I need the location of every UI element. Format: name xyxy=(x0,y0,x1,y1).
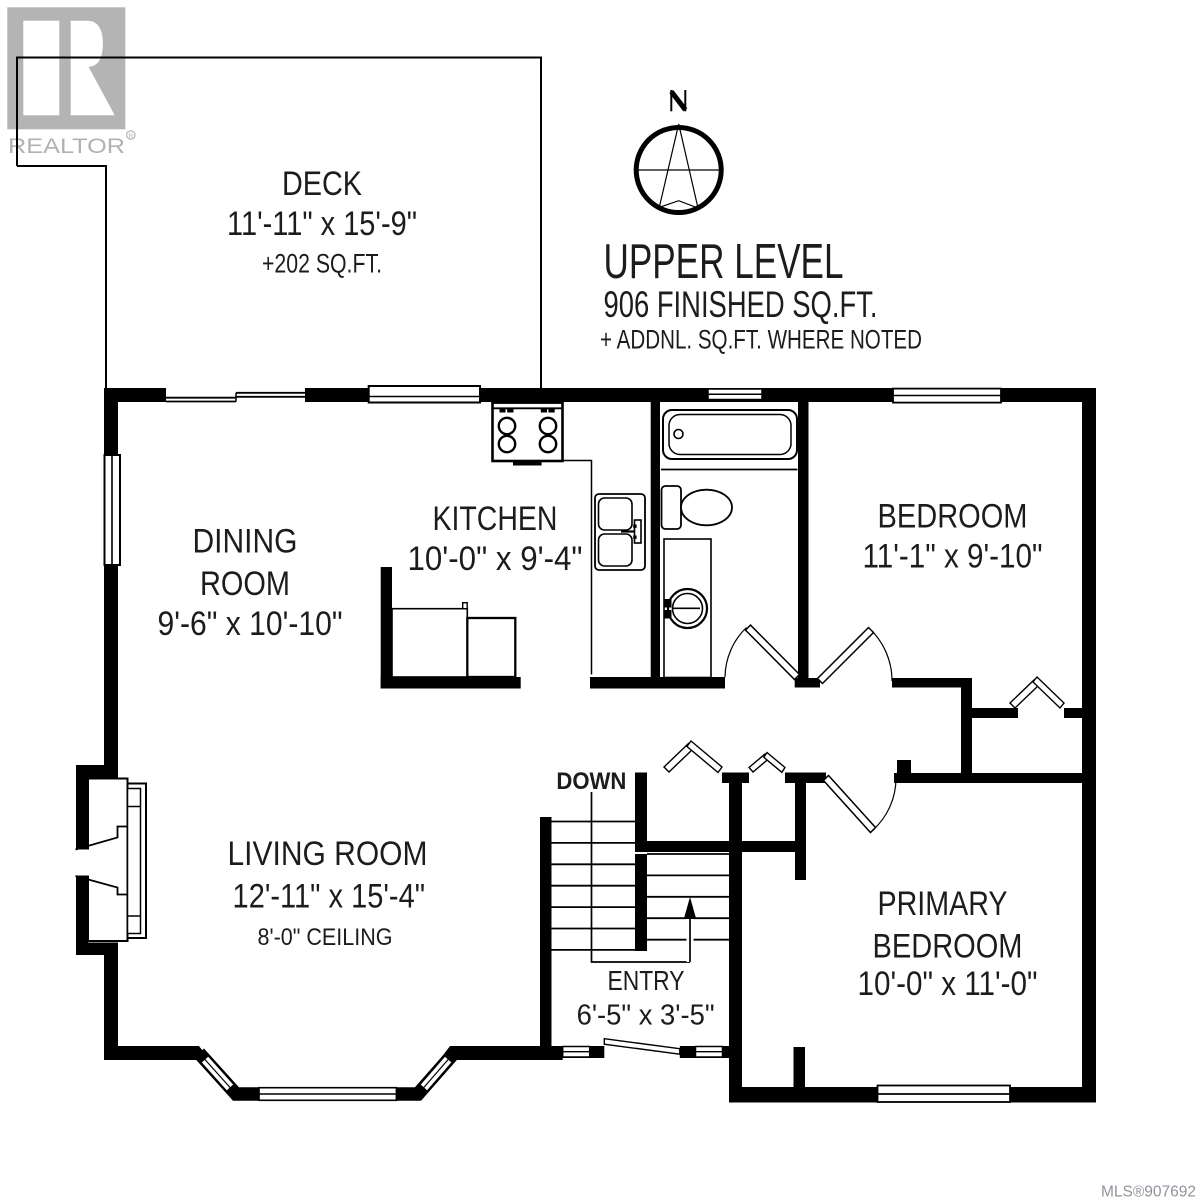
svg-text:LIVING ROOM: LIVING ROOM xyxy=(228,835,428,873)
svg-text:11'-11" x 15'-9": 11'-11" x 15'-9" xyxy=(227,205,417,243)
svg-text:UPPER LEVEL: UPPER LEVEL xyxy=(604,235,844,289)
svg-text:DINING: DINING xyxy=(193,523,298,561)
svg-text:REALTOR: REALTOR xyxy=(8,135,125,158)
svg-text:PRIMARY: PRIMARY xyxy=(878,885,1008,923)
svg-text:ENTRY: ENTRY xyxy=(608,965,685,996)
svg-text:BEDROOM: BEDROOM xyxy=(878,498,1028,536)
svg-text:6'-5" x 3'-5": 6'-5" x 3'-5" xyxy=(577,1000,715,1032)
svg-text:+ ADDNL. SQ.FT. WHERE NOTED: + ADDNL. SQ.FT. WHERE NOTED xyxy=(600,325,922,355)
svg-text:ROOM: ROOM xyxy=(200,565,290,603)
svg-text:10'-0" x 11'-0": 10'-0" x 11'-0" xyxy=(858,965,1038,1003)
svg-text:DECK: DECK xyxy=(282,165,362,203)
svg-text:8'-0" CEILING: 8'-0" CEILING xyxy=(258,924,393,951)
svg-text:10'-0" x 9'-4": 10'-0" x 9'-4" xyxy=(408,540,583,578)
svg-text:MLS®907692: MLS®907692 xyxy=(1101,1184,1196,1200)
svg-text:9'-6" x 10'-10": 9'-6" x 10'-10" xyxy=(158,605,343,643)
svg-text:11'-1" x 9'-10": 11'-1" x 9'-10" xyxy=(863,538,1043,576)
svg-text:DOWN: DOWN xyxy=(556,768,626,795)
svg-text:KITCHEN: KITCHEN xyxy=(433,500,558,538)
svg-text:906 FINISHED SQ.FT.: 906 FINISHED SQ.FT. xyxy=(604,284,878,325)
svg-text:12'-11" x 15'-4": 12'-11" x 15'-4" xyxy=(233,878,426,916)
svg-text:R: R xyxy=(128,133,133,140)
svg-text:BEDROOM: BEDROOM xyxy=(873,928,1023,966)
svg-text:+202 SQ.FT.: +202 SQ.FT. xyxy=(262,249,382,279)
